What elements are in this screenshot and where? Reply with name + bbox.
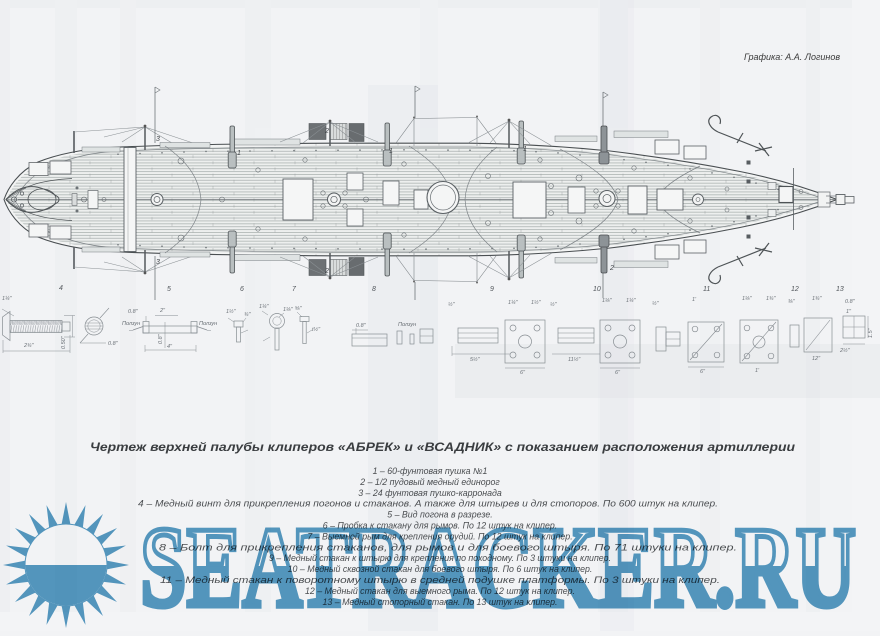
svg-text:11½": 11½" [568, 356, 581, 363]
svg-text:1¼": 1¼" [626, 298, 637, 304]
svg-text:1¾": 1¾" [812, 296, 823, 302]
svg-text:1: 1 [523, 146, 527, 153]
svg-text:1⅛": 1⅛" [283, 307, 294, 313]
svg-text:3: 3 [156, 136, 160, 143]
svg-text:Ползун: Ползун [122, 321, 140, 327]
svg-text:0.8": 0.8" [356, 323, 367, 329]
svg-text:Графика: А.А. Логинов: Графика: А.А. Логинов [744, 52, 840, 62]
svg-text:2: 2 [609, 265, 614, 272]
svg-text:0.8": 0.8" [108, 341, 119, 347]
svg-text:2½": 2½" [839, 347, 851, 354]
svg-text:0.50": 0.50" [61, 335, 67, 349]
svg-text:1¼": 1¼" [259, 304, 270, 310]
svg-text:Ползун: Ползун [199, 321, 217, 327]
svg-text:Ползун: Ползун [398, 322, 416, 328]
svg-text:½": ½" [448, 301, 456, 308]
svg-text:5½": 5½" [470, 356, 481, 363]
svg-text:Чертеж верхней палубы клиперов: Чертеж верхней палубы клиперов «АБРЕК» и… [90, 440, 796, 454]
svg-text:12": 12" [812, 356, 821, 362]
svg-text:2: 2 [324, 268, 329, 275]
svg-text:1⅛": 1⅛" [742, 296, 753, 302]
svg-text:6: 6 [240, 286, 244, 293]
svg-text:9: 9 [490, 286, 494, 293]
svg-text:t½": t½" [312, 326, 321, 333]
svg-text:11: 11 [703, 286, 710, 293]
svg-text:1½": 1½" [531, 299, 542, 306]
svg-text:1¾": 1¾" [766, 296, 777, 302]
svg-text:13: 13 [836, 286, 844, 293]
svg-text:½": ½" [652, 300, 660, 307]
svg-text:0.8": 0.8" [128, 309, 139, 315]
svg-text:12: 12 [791, 286, 799, 293]
svg-text:3 – 24 фунтовая пушко-карронад: 3 – 24 фунтовая пушко-карронада [358, 488, 502, 498]
svg-text:4: 4 [59, 285, 63, 292]
svg-text:1: 1 [389, 148, 393, 155]
svg-text:1.5": 1.5" [868, 327, 874, 338]
svg-text:3: 3 [156, 259, 160, 266]
svg-text:1½": 1½" [226, 308, 237, 315]
svg-text:½": ½" [550, 301, 558, 308]
svg-text:⅝": ⅝" [295, 306, 303, 312]
svg-text:1: 1 [237, 150, 241, 157]
svg-text:2 – 1/2 пудовый медный единоро: 2 – 1/2 пудовый медный единорог [359, 477, 500, 487]
svg-text:8: 8 [372, 286, 376, 293]
svg-text:1 – 60-фунтовая пушка №1: 1 – 60-фунтовая пушка №1 [373, 466, 488, 476]
svg-text:0.8": 0.8" [845, 299, 856, 305]
svg-text:0.8": 0.8" [158, 333, 164, 344]
svg-text:¾": ¾" [244, 312, 252, 318]
svg-text:10: 10 [593, 286, 601, 293]
svg-text:2": 2" [159, 308, 166, 314]
svg-text:2¾": 2¾" [23, 343, 35, 349]
svg-text:1⅛": 1⅛" [602, 298, 613, 304]
svg-text:5: 5 [167, 286, 171, 293]
svg-text:1¼": 1¼" [2, 296, 13, 302]
svg-text:2: 2 [324, 128, 329, 135]
svg-text:1¼": 1¼" [508, 300, 519, 306]
svg-text:⅜": ⅜" [788, 299, 796, 305]
svg-text:SEATRACKER.RU: SEATRACKER.RU [140, 504, 856, 631]
